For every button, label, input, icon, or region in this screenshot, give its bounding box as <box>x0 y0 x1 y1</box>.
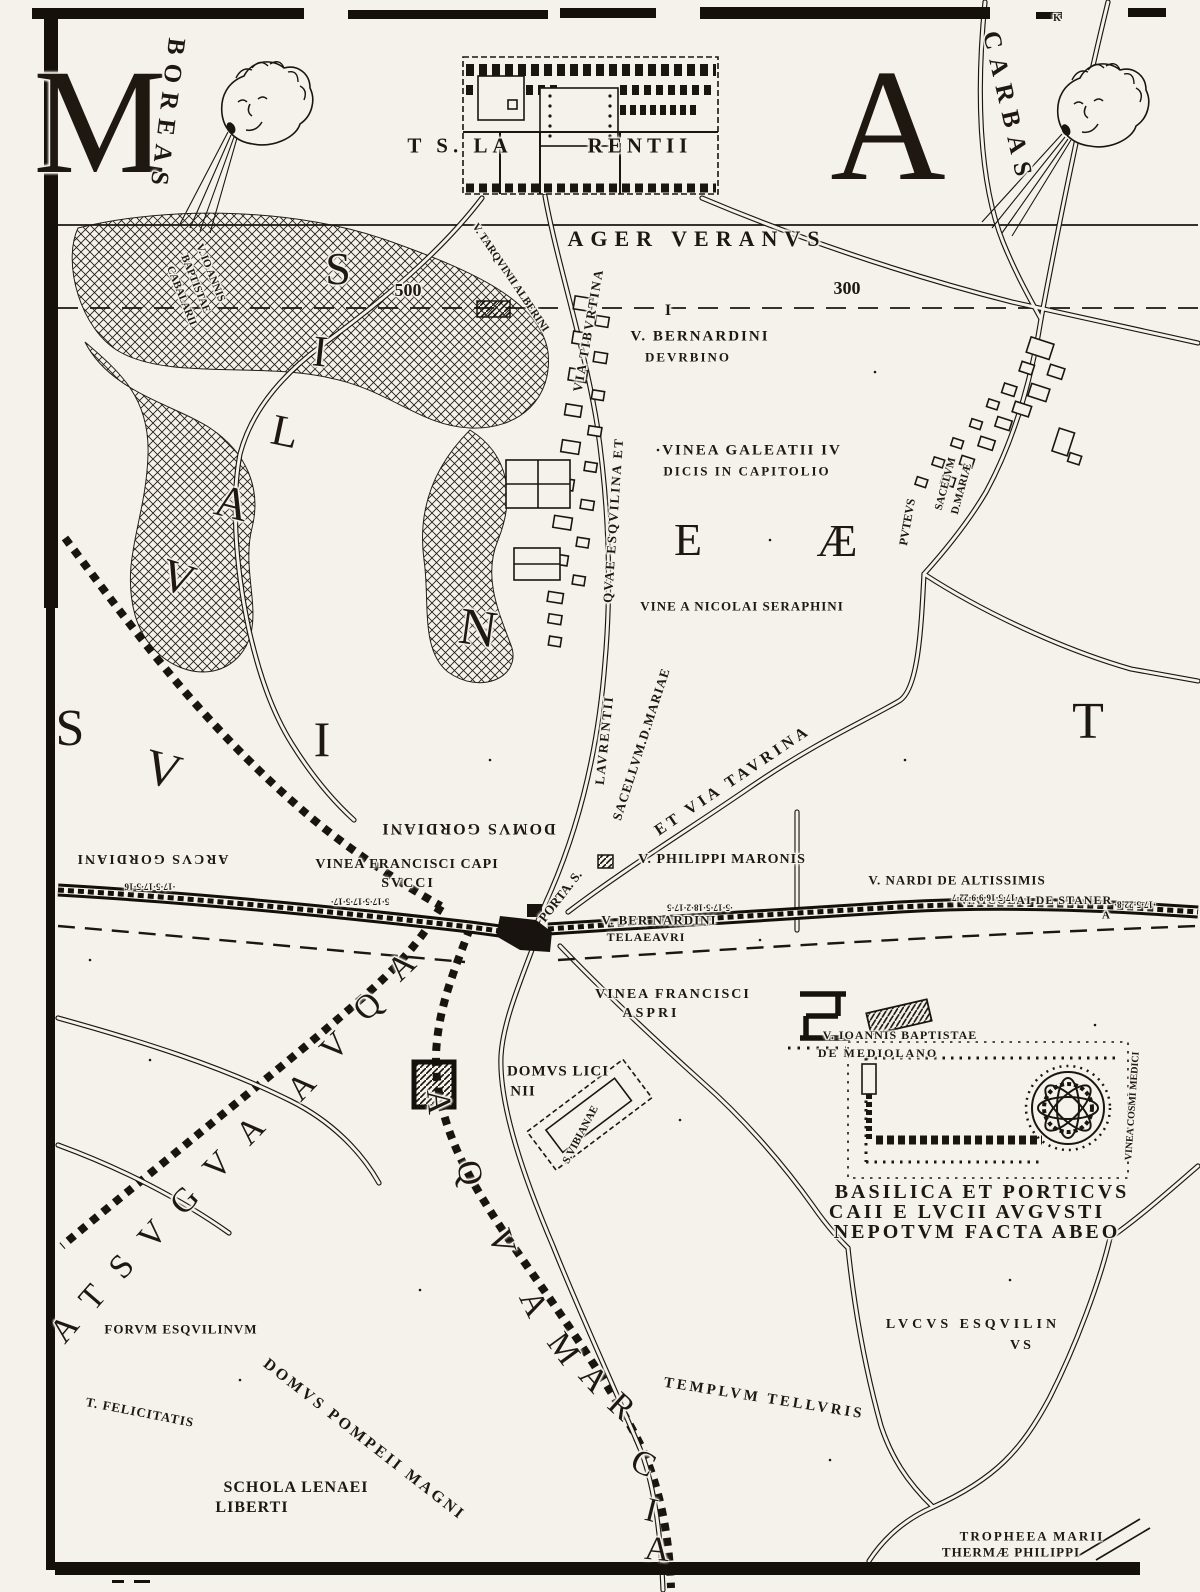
region-letter-v: V <box>139 740 187 798</box>
vineyard-galeatii-2: DICIS IN CAPITOLIO <box>663 465 830 478</box>
valley-letter-l: L <box>267 408 302 457</box>
valley-letter-s: S <box>325 246 351 292</box>
aqua-augusta-t: T <box>73 1279 112 1317</box>
vineyard-nardi-altissimis: V. NARDI DE ALTISSIMIS <box>868 874 1045 887</box>
aqua-augusta-v1: V <box>314 1026 355 1067</box>
basilica-caption-2: CAII E LVCII AVGVSTI <box>829 1202 1105 1222</box>
lucus-esquilinus-1: LVCVS ESQVILIN <box>886 1318 1060 1332</box>
aqua-augusta-q: Q <box>347 986 388 1028</box>
aqua-marcia-a3: A <box>572 1358 614 1399</box>
puteus: PVTEVS <box>897 498 917 547</box>
domus-licinii-1: DOMVS LICI <box>507 1065 609 1080</box>
aqua-augusta-s: S <box>103 1249 141 1286</box>
schola-lenaei-1: SCHOLA LENAEI <box>223 1480 368 1496</box>
aqua-marcia-q: Q <box>450 1157 488 1188</box>
aqua-marcia-a2: A <box>512 1286 553 1323</box>
bufalini-woodcut-map-sheet: MABOREASCARBAST S. LARENTIIAGER VERANVS5… <box>0 0 1200 1592</box>
region-letter-t: T <box>1072 696 1104 748</box>
schola-lenaei-2: LIBERTI <box>215 1500 288 1516</box>
scale-number-300: 300 <box>834 279 861 297</box>
vineyard-ioannis-mediolano-2: DE MEDIOLANO <box>818 1047 938 1059</box>
aqua-augusta-v2: V <box>197 1145 239 1186</box>
wall-measure-3: ·5·17·5·18·2·17·5 <box>667 903 733 912</box>
vineyard-ioannis-mediolano-1: V. IOANNIS BAPTISTAE <box>823 1029 978 1041</box>
aqua-marcia-a1: A <box>420 1088 456 1115</box>
vineyard-bernardini-urbino-2: DEVRBINO <box>645 351 731 364</box>
vineyard-francisci-capisucci-1: VINEA FRANCISCI CAPI <box>315 858 498 872</box>
vineyard-tarquinii: V. TARQVINII ALBERINI <box>470 222 551 334</box>
church-label-left: T S. LA <box>407 136 512 157</box>
domus-pompeii-magni: DOMVS POMPEII MAGNI <box>260 1356 468 1524</box>
domus-licinii-2: NII <box>510 1085 536 1100</box>
church-label-right: RENTII <box>588 136 693 157</box>
trophaea-marii: TROPHEEA MARII <box>960 1530 1105 1543</box>
frame-mark-top: K <box>1053 14 1061 24</box>
map-labels-layer: MABOREASCARBAST S. LARENTIIAGER VERANVS5… <box>0 0 1200 1592</box>
wall-measure-2: 5·17·5·17·5·17· <box>331 897 390 906</box>
basilica-caption-1: BASILICA ET PORTICVS <box>835 1182 1130 1202</box>
region-letter-ae: Æ <box>817 518 858 564</box>
vineyard-francisci-aspri-1: VINEA FRANCISCI <box>595 988 751 1002</box>
wall-measure-5: ·17·5·22·8· <box>1114 900 1156 909</box>
valley-letter-v: V <box>155 551 201 605</box>
templum-felicitatis: T. FELICITATIS <box>85 1395 196 1429</box>
road-via-taurina: ET VIA TAVRINA <box>652 723 814 839</box>
vineyard-francisci-capisucci-2: SVCCI <box>381 877 435 891</box>
arcus-gordiani: ARCVS GORDIANI <box>76 851 229 865</box>
vineyard-nicolai-seraphini: VINE A NICOLAI SERAPHINI <box>640 600 844 613</box>
wall-measure-1: ·17·5·17·5·16 <box>124 882 175 891</box>
aqua-marcia-r: R <box>601 1387 641 1427</box>
region-letter-i: I <box>314 714 331 764</box>
scale-number-500: 500 <box>395 281 422 299</box>
region-ager-veranus: AGER VERANVS <box>567 228 826 250</box>
forum-esquilinum: FORVM ESQVILINVM <box>104 1323 257 1336</box>
aqua-marcia-i: I <box>641 1493 660 1529</box>
church-s-vibianae: S.VIBIANAE <box>561 1104 601 1166</box>
region-letter-n: N <box>456 601 500 658</box>
staner-mark: A <box>1102 911 1110 922</box>
aqua-augusta-a1: A <box>381 946 422 988</box>
lucus-esquilinus-2: VS <box>1010 1339 1034 1353</box>
aqua-augusta-a4: A <box>44 1309 86 1350</box>
vineyard-philippi-maronis: V. PHILIPPI MARONIS <box>638 853 806 867</box>
wall-measure-4: ·17·5·16·9·9·22·7 <box>952 893 1018 902</box>
boundary-mark-i: I <box>665 303 671 319</box>
vineyard-bernardini-telaeauri-1: V. BER NARDINI <box>601 914 716 927</box>
road-laurentii: LAVRENTII <box>593 695 615 786</box>
domus-gordiani: DOMVS GORDIANI <box>380 820 555 836</box>
thermae-philippi: THERMÆ PHILIPPI <box>942 1546 1080 1559</box>
aqua-augusta-v3: V <box>132 1214 174 1255</box>
aqua-augusta-g: G <box>164 1180 206 1221</box>
region-letter-e: E <box>674 517 702 563</box>
road-via-tiburtina: VIA TIBVRTINA <box>571 267 606 393</box>
templum-telluris: TEMPLVM TELLVRIS <box>663 1376 866 1423</box>
valley-letter-i: I <box>310 329 329 374</box>
vineyard-bernardini-telaeauri-2: TELAEAVRI <box>607 931 686 943</box>
aqua-marcia-a4: A <box>643 1532 671 1568</box>
region-letter-s: S <box>56 703 85 755</box>
aqua-marcia-c: C <box>625 1444 660 1485</box>
valley-letter-a: A <box>210 477 253 530</box>
sheet-letter-right: A <box>830 45 946 205</box>
road-porta-s: PORTA. S. <box>536 868 584 924</box>
vineyard-galeatii-1: VINEA GALEATII IV <box>662 444 842 459</box>
basilica-caption-3: NEPOTVM FACTA ABEO <box>834 1222 1121 1242</box>
road-esquilina: QVAE ESQVILINA ET <box>601 437 626 603</box>
aqua-augusta-a2: A <box>281 1066 323 1107</box>
aqua-augusta-a3: A <box>230 1110 272 1151</box>
aqua-marcia-m: M <box>540 1327 585 1371</box>
vineyard-bernardini-urbino-1: V. BERNARDINI <box>630 330 769 345</box>
aqua-marcia-v: V <box>481 1225 521 1259</box>
wind-label-carbas: CARBAS <box>978 29 1038 187</box>
vineyard-cosmi-medici: VINEA COSMI MEDICI <box>1124 1051 1142 1160</box>
road-sacellum-mariae: SACELLVM.D.MARIAE <box>610 666 672 822</box>
vineyard-francisci-aspri-2: ASPRI <box>622 1007 679 1021</box>
